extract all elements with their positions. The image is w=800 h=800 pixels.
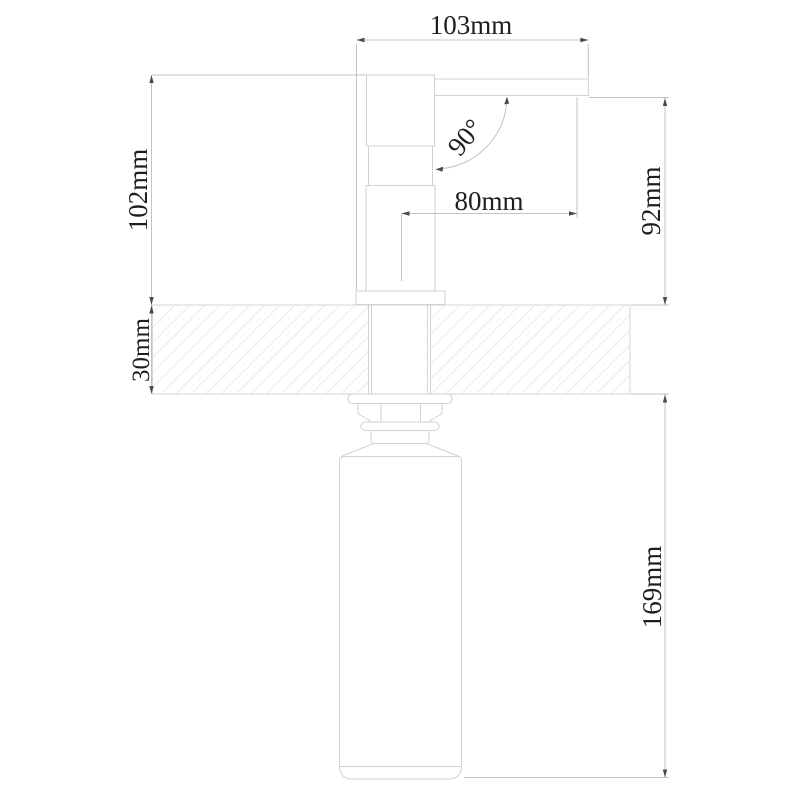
- arrow-80-right: [569, 211, 577, 215]
- dimension-body-height: 102mm: [123, 75, 366, 305]
- arrow-92-bottom: [663, 297, 667, 305]
- bottle-shoulder-right: [426, 444, 460, 457]
- arrow-103-right: [580, 38, 588, 42]
- base-flange: [356, 291, 445, 305]
- pump-head: [367, 75, 435, 146]
- dim-label-spout-reach: 80mm: [454, 186, 523, 216]
- mounting-nut: [358, 404, 442, 423]
- arrow-92-top: [663, 98, 667, 106]
- dim-label-body-height: 102mm: [123, 149, 153, 232]
- dimension-under-counter-length: 169mm: [464, 394, 669, 778]
- arrow-90-lower: [436, 167, 444, 172]
- arrow-102-bottom: [149, 297, 153, 305]
- arrow-90-upper: [504, 97, 509, 105]
- arrow-103-left: [357, 38, 365, 42]
- under-counter-hardware: [340, 394, 462, 779]
- arrow-169-bottom: [663, 770, 667, 778]
- dim-label-spout-angle: 90°: [441, 113, 488, 161]
- dim-label-under-counter-length: 169mm: [637, 546, 667, 629]
- dimension-deck-thickness: 30mm: [128, 305, 155, 394]
- neck-collar: [361, 422, 439, 431]
- head-neck-section: [369, 146, 433, 186]
- arrow-102-top: [149, 75, 153, 83]
- locking-washer: [348, 394, 452, 404]
- spout: [435, 79, 589, 96]
- soap-bottle: [340, 457, 462, 780]
- countertop-section: [153, 305, 631, 394]
- dim-label-deck-thickness: 30mm: [128, 318, 155, 382]
- body-shaft: [366, 186, 435, 292]
- arrow-169-top: [663, 395, 667, 403]
- bottle-shoulder-left: [341, 444, 374, 457]
- dimension-clearance-height: 92mm: [589, 98, 669, 306]
- dim-label-spout-span: 103mm: [430, 10, 513, 40]
- technical-drawing-canvas: 103mm 102mm 30mm 92mm 169mm: [0, 0, 800, 800]
- dimension-spout-angle: 90°: [436, 97, 510, 172]
- bottle-neck: [371, 431, 429, 444]
- dim-label-clearance-height: 92mm: [636, 166, 666, 235]
- dispenser-dimension-drawing: 103mm 102mm 30mm 92mm 169mm: [0, 0, 800, 800]
- counter-hole-mask: [369, 306, 430, 393]
